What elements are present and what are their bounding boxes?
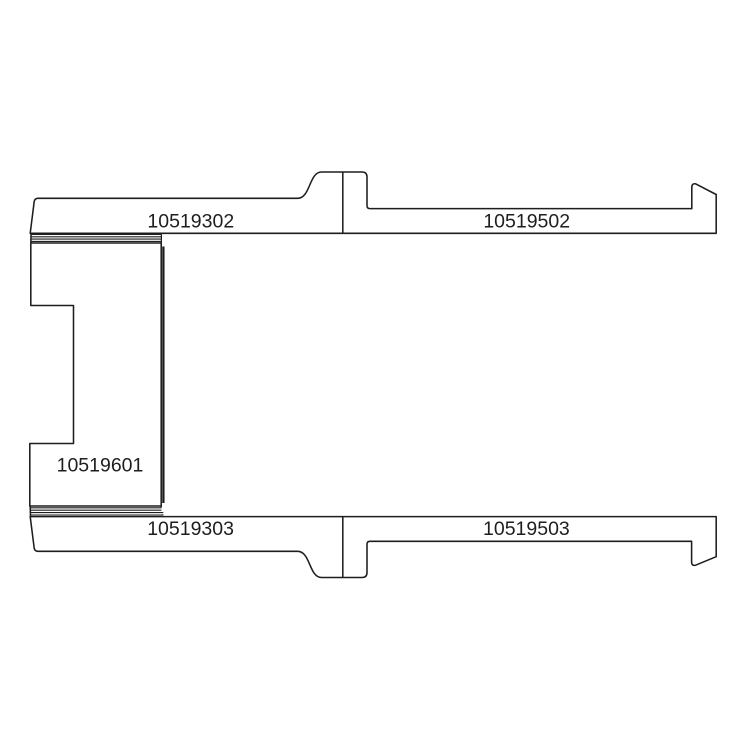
svg-text:10519502: 10519502: [483, 211, 570, 233]
svg-text:10519601: 10519601: [57, 455, 144, 477]
svg-text:10519503: 10519503: [483, 518, 570, 540]
svg-text:10519302: 10519302: [147, 211, 234, 233]
svg-text:10519303: 10519303: [147, 518, 234, 540]
